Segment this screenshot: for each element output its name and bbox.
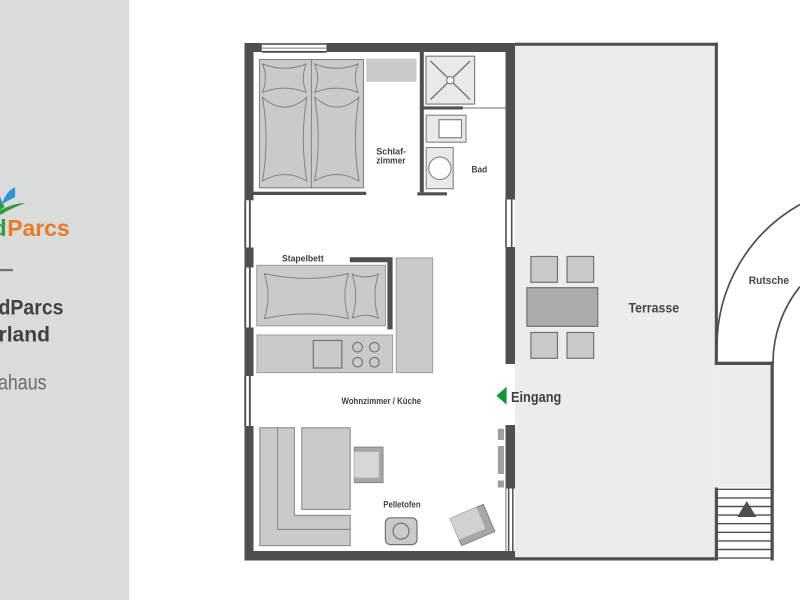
svg-text:Stapelbett: Stapelbett	[282, 253, 324, 264]
svg-text:rland: rland	[0, 324, 50, 347]
svg-text:Parcs: Parcs	[7, 215, 69, 241]
svg-text:Rutsche: Rutsche	[749, 275, 789, 287]
svg-text:Wohnzimmer / Küche: Wohnzimmer / Küche	[342, 396, 422, 407]
svg-text:dParcs: dParcs	[0, 297, 64, 320]
svg-text:Bad: Bad	[472, 165, 488, 176]
svg-text:Pelletofen: Pelletofen	[383, 499, 420, 510]
svg-text:Eingang: Eingang	[511, 389, 561, 406]
svg-text:ahaus: ahaus	[0, 372, 47, 395]
svg-text:Terrasse: Terrasse	[629, 300, 680, 316]
svg-text:zimmer: zimmer	[376, 156, 406, 167]
svg-text:d: d	[0, 215, 7, 241]
